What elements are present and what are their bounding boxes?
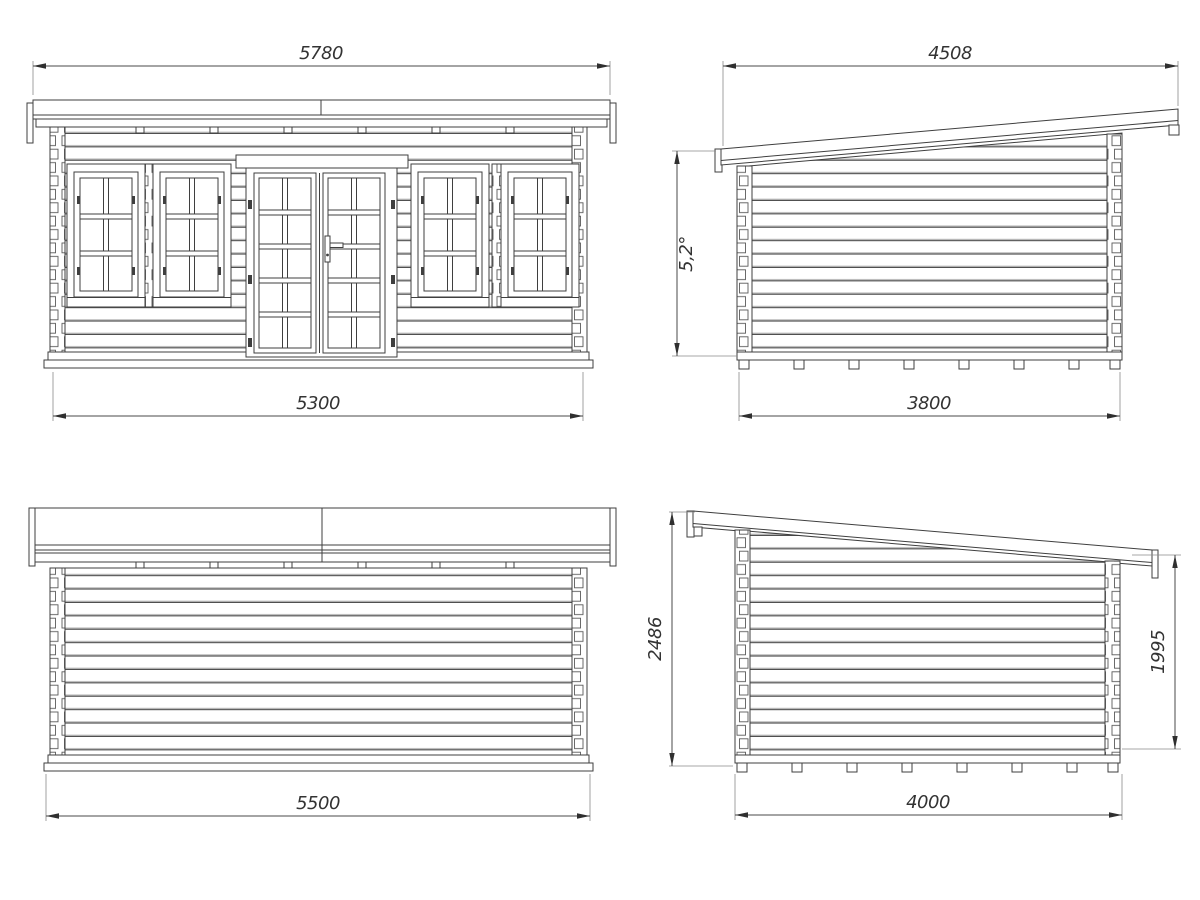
door-leaf-left	[254, 173, 316, 353]
dim-text-back-base-width: 5500	[296, 793, 340, 814]
side-elevation-a-view: 4508 5,2°	[672, 43, 1179, 421]
dim-text-side-b-overall-height: 2486	[645, 617, 666, 661]
corner-log-ends-right	[1105, 561, 1120, 755]
corner-log-ends-left	[735, 530, 750, 755]
side-b-wall	[735, 530, 1120, 755]
dim-text-side-b-base-depth: 4000	[906, 792, 950, 813]
log-ends-between-windows-left	[145, 164, 153, 307]
front-window-3	[411, 164, 489, 307]
dimension-side-a-wall-depth: 3800	[739, 372, 1120, 421]
side-a-base	[737, 352, 1122, 369]
corner-log-ends-left	[50, 568, 65, 755]
dim-text-front-wall-width: 5300	[296, 393, 340, 414]
front-window-4	[501, 164, 579, 307]
front-elevation-view: 5780	[27, 43, 616, 421]
back-wall	[50, 562, 587, 755]
door-header	[236, 155, 408, 168]
side-b-base	[735, 755, 1120, 772]
door-leaf-right	[323, 173, 385, 353]
dimension-side-b-eave-height: 1995	[1122, 555, 1181, 749]
corner-log-ends-right	[572, 568, 587, 755]
front-window-1	[67, 164, 145, 307]
corner-log-ends-left	[737, 166, 752, 352]
back-elevation-view: 5500	[29, 508, 616, 821]
dimension-front-wall-width: 5300	[53, 372, 583, 421]
technical-drawing-canvas: 5780	[0, 0, 1200, 900]
back-base	[44, 755, 593, 771]
front-window-2	[153, 164, 231, 307]
back-roof	[29, 508, 616, 566]
dim-text-side-a-wall-depth: 3800	[907, 393, 951, 414]
technical-drawing-page: 5780	[0, 0, 1200, 900]
dimension-side-b-base-depth: 4000	[735, 774, 1122, 820]
front-double-door	[236, 155, 408, 357]
dim-text-front-overall-width: 5780	[299, 43, 343, 64]
dim-text-side-b-eave-height: 1995	[1148, 630, 1169, 674]
dimension-front-overall-width: 5780	[33, 43, 610, 95]
dimension-side-b-overall-height: 2486	[645, 512, 733, 766]
dim-text-side-a-overall-depth: 4508	[928, 43, 972, 64]
dimension-back-base-width: 5500	[46, 774, 590, 821]
dimension-side-a-roof-angle: 5,2°	[672, 151, 737, 356]
side-a-wall	[737, 133, 1122, 352]
dim-text-side-a-roof-angle: 5,2°	[676, 236, 697, 272]
log-ends-between-windows-right	[492, 164, 501, 307]
corner-log-ends-right	[1107, 134, 1122, 352]
corner-log-ends-left	[50, 127, 65, 352]
side-elevation-b-view: 2486 1995 4000	[645, 511, 1181, 820]
